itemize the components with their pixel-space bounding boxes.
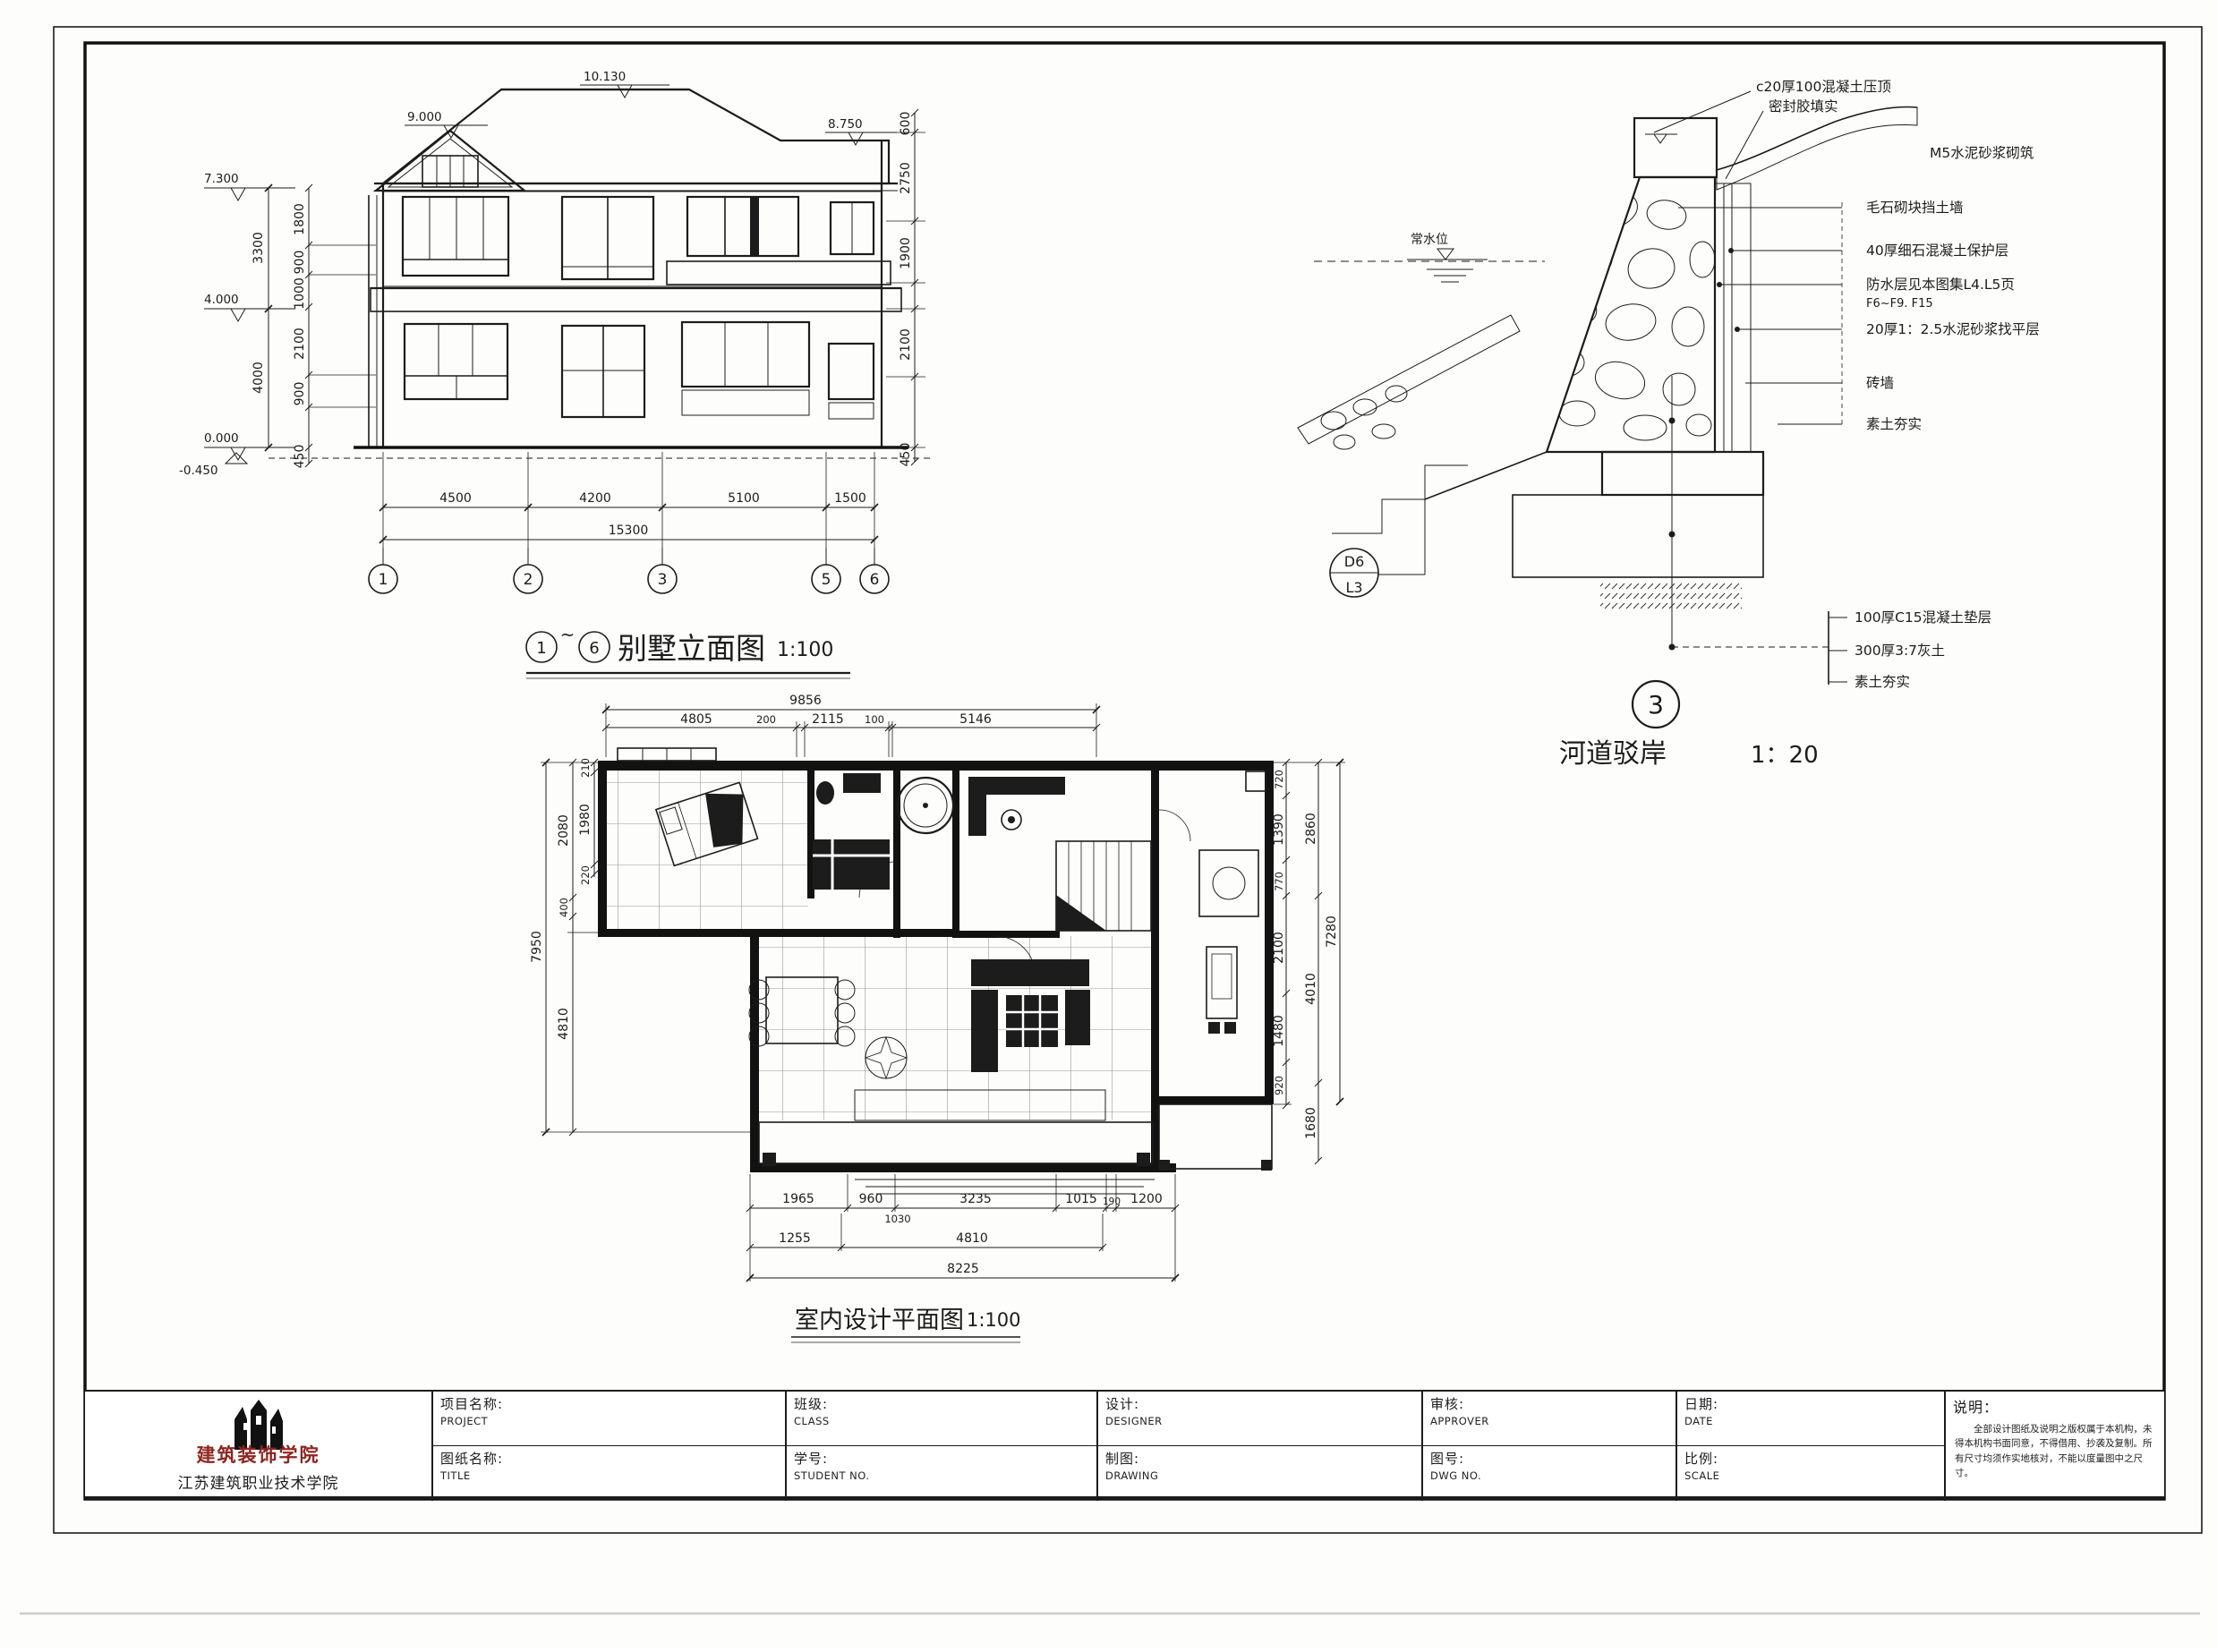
notes-cell: 说明： 全部设计图纸及说明之版权属于本机构，未得本机构书面同意，不得借用、抄袭及… — [1944, 1392, 2164, 1501]
dim-9856: 9856 — [789, 694, 822, 708]
logo-text-line2: 江苏建筑职业技术学院 — [178, 1470, 339, 1493]
level-below-ground: -0.450 — [179, 464, 218, 478]
field-drawing-en: DRAWING — [1105, 1469, 1414, 1482]
sheet-border — [20, 27, 2202, 1614]
ann-sealant: 密封胶填实 — [1769, 98, 1838, 115]
revetment-title: 3 河道驳岸 1：20 — [1559, 681, 1819, 770]
dim-b-1015: 1015 — [1065, 1192, 1097, 1206]
dim-r-2750: 2750 — [899, 162, 913, 194]
field-col-date-scale: 日期: DATE 比例: SCALE — [1676, 1392, 1944, 1501]
dim-l-400: 400 — [558, 898, 570, 917]
revetment-bubble-number: 3 — [1648, 690, 1664, 720]
dim-r-600: 600 — [899, 112, 913, 136]
dim-2115: 2115 — [812, 712, 844, 727]
floorplan-dims-bottom: 1965 960 1030 3235 1015 190 1200 1255 48… — [746, 1174, 1179, 1282]
dim-r-720: 720 — [1273, 770, 1285, 789]
dim-r-2100: 2100 — [899, 328, 913, 361]
floorplan-title: 室内设计平面图 1:100 — [791, 1307, 1021, 1342]
dim-r-770: 770 — [1273, 872, 1285, 891]
revetment-detail-drawing: 常水位 — [1298, 107, 1917, 651]
dim-b-960: 960 — [859, 1192, 883, 1206]
field-approver-en: APPROVER — [1430, 1415, 1668, 1427]
field-student-no-zh: 学号: — [794, 1449, 1089, 1468]
revetment-annotations-bottom: 100厚C15混凝土垫层 300厚3:7灰土 素土夯实 — [1829, 609, 1991, 690]
notes-text: 全部设计图纸及说明之版权属于本机构，未得本机构书面同意，不得借用、抄袭及复制。所… — [1955, 1422, 2155, 1480]
dim-900a: 900 — [293, 251, 307, 275]
ann-compacted-soil-b: 素土夯实 — [1855, 674, 1910, 690]
dim-4805: 4805 — [680, 712, 712, 727]
dim-b-4810: 4810 — [956, 1231, 988, 1246]
dim-5146: 5146 — [959, 712, 992, 727]
ann-brick-wall: 砖墙 — [1866, 375, 1894, 391]
dim-4200: 4200 — [579, 491, 611, 506]
field-date: 日期: DATE — [1677, 1392, 1944, 1446]
dim-r-1900: 1900 — [899, 237, 913, 269]
field-approver-zh: 审核: — [1430, 1394, 1668, 1413]
elevation-title-text: 别墅立面图 — [618, 631, 765, 666]
field-scale: 比例: SCALE — [1677, 1446, 1944, 1501]
dim-b-190: 190 — [1103, 1196, 1121, 1207]
floorplan-dims-right: 720 1390 770 2100 1480 920 2860 4010 168… — [1272, 759, 1345, 1164]
title-range-sep: ~ — [560, 624, 576, 645]
revetment-ref-bubble: D6 L3 — [1330, 498, 1425, 597]
grid-bubble-6: 6 — [870, 571, 880, 589]
level-ridge: 10.130 — [584, 70, 626, 84]
dim-r-450: 450 — [899, 443, 913, 467]
field-title: 图纸名称: TITLE — [433, 1446, 785, 1501]
grid-bubble-2: 2 — [524, 571, 533, 589]
grid-bubble-5: 5 — [822, 571, 831, 589]
field-designer-en: DESIGNER — [1105, 1415, 1414, 1427]
level-eave: 7.300 — [204, 172, 239, 186]
ann-protective-layer: 40厚细石混凝土保护层 — [1866, 243, 2008, 259]
dim-1800: 1800 — [293, 203, 307, 235]
drawing-sheet: 10.130 9.000 8.750 7.300 4.000 0.000 -0.… — [0, 0, 2217, 1648]
ann-waterproof-1: 防水层见本图集L4.L5页 — [1866, 277, 2015, 293]
field-dwg-no: 图号: DWG NO. — [1423, 1446, 1676, 1501]
ann-retaining-wall: 毛石砌块挡土墙 — [1866, 200, 1964, 216]
floorplan-title-text: 室内设计平面图 — [795, 1307, 964, 1334]
dim-b-1030: 1030 — [884, 1213, 910, 1225]
field-drawing: 制图: DRAWING — [1098, 1446, 1421, 1501]
floorplan-title-scale: 1:100 — [967, 1309, 1021, 1331]
dim-r-2100: 2100 — [1272, 932, 1286, 964]
field-approver: 审核: APPROVER — [1423, 1392, 1676, 1446]
elevation-dims-left: 3300 4000 1800 900 1000 2100 900 450 — [252, 184, 376, 468]
title-range-end: 6 — [589, 639, 599, 658]
dim-15300: 15300 — [609, 524, 649, 538]
dim-l-4810: 4810 — [557, 1008, 571, 1040]
dim-l-1980: 1980 — [578, 804, 593, 836]
field-scale-zh: 比例: — [1684, 1449, 1937, 1468]
dim-b-8225: 8225 — [947, 1262, 979, 1276]
dim-200: 200 — [756, 713, 776, 726]
elevation-levels: 10.130 9.000 8.750 7.300 4.000 0.000 -0.… — [179, 70, 897, 478]
elevation-dims-bottom: 4500 4200 5100 1500 15300 1 2 3 5 6 — [369, 452, 889, 593]
dim-r-1680: 1680 — [1304, 1107, 1318, 1139]
field-date-en: DATE — [1684, 1415, 1937, 1427]
dim-l-220: 220 — [579, 865, 592, 885]
field-class-en: CLASS — [794, 1415, 1089, 1427]
dim-l-210: 210 — [579, 758, 592, 778]
dim-r-920: 920 — [1273, 1076, 1285, 1095]
dim-l-7950: 7950 — [530, 931, 544, 963]
dim-2100: 2100 — [293, 328, 307, 360]
level-ground: 0.000 — [204, 431, 239, 446]
ref-top: D6 — [1344, 553, 1365, 570]
revetment-title-text: 河道驳岸 — [1559, 738, 1667, 770]
ann-cap: c20厚100混凝土压顶 — [1756, 79, 1891, 95]
revetment-annotations-right: 毛石砌块挡土墙 40厚细石混凝土保护层 防水层见本图集L4.L5页 F6~F9.… — [1678, 200, 2040, 432]
revetment-title-scale: 1：20 — [1751, 742, 1819, 769]
ann-cushion: 100厚C15混凝土垫层 — [1855, 609, 1991, 626]
field-drawing-zh: 制图: — [1105, 1449, 1414, 1468]
level-floor2: 4.000 — [204, 293, 239, 307]
elevation-title: 1 ~ 6 别墅立面图 1:100 — [526, 624, 850, 678]
rubble-stones — [1545, 186, 1715, 440]
dim-4000: 4000 — [252, 362, 266, 394]
dim-b-1965: 1965 — [782, 1192, 814, 1206]
dim-r-4010: 4010 — [1304, 973, 1318, 1005]
dim-1000: 1000 — [293, 277, 307, 310]
dim-1500: 1500 — [834, 491, 866, 506]
dim-5100: 5100 — [728, 491, 760, 506]
dim-r-7280: 7280 — [1325, 915, 1339, 948]
field-designer-zh: 设计: — [1105, 1394, 1414, 1413]
logo-cell: 建筑装饰学院 江苏建筑职业技术学院 — [85, 1392, 431, 1501]
dim-r-2860: 2860 — [1304, 813, 1318, 845]
logo-text-line1: 建筑装饰学院 — [197, 1441, 320, 1468]
grid-bubble-3: 3 — [658, 571, 668, 589]
elevation-title-scale: 1:100 — [777, 639, 833, 661]
field-scale-en: SCALE — [1684, 1469, 1937, 1482]
level-right-roof: 8.750 — [828, 117, 863, 132]
dim-4500: 4500 — [439, 491, 472, 506]
title-block: 建筑装饰学院 江苏建筑职业技术学院 项目名称: PROJECT 图纸名称: TI… — [85, 1390, 2164, 1499]
field-date-zh: 日期: — [1684, 1394, 1937, 1413]
field-col-approver-dwgno: 审核: APPROVER 图号: DWG NO. — [1421, 1392, 1676, 1501]
floorplan-drawing — [598, 748, 1274, 1194]
field-title-zh: 图纸名称: — [440, 1449, 778, 1468]
field-project: 项目名称: PROJECT — [433, 1392, 785, 1446]
dim-b-1255: 1255 — [779, 1231, 811, 1246]
field-col-designer-drawing: 设计: DESIGNER 制图: DRAWING — [1096, 1392, 1421, 1501]
field-dwg-no-zh: 图号: — [1430, 1449, 1668, 1468]
field-dwg-no-en: DWG NO. — [1430, 1469, 1668, 1482]
ref-bottom: L3 — [1345, 579, 1362, 596]
dim-l-2080: 2080 — [557, 814, 571, 847]
water-level-label: 常水位 — [1411, 233, 1448, 247]
level-left-gable: 9.000 — [407, 110, 442, 124]
field-class-zh: 班级: — [794, 1394, 1089, 1413]
field-col-project-title: 项目名称: PROJECT 图纸名称: TITLE — [431, 1392, 785, 1501]
ann-leveling-layer: 20厚1：2.5水泥砂浆找平层 — [1866, 321, 2040, 337]
field-project-zh: 项目名称: — [440, 1394, 778, 1413]
dim-3300: 3300 — [252, 232, 266, 264]
notes-label: 说明： — [1953, 1395, 2157, 1417]
ann-mortar: M5水泥砂浆砌筑 — [1930, 145, 2034, 161]
field-student-no-en: STUDENT NO. — [794, 1469, 1089, 1482]
field-col-class-student: 班级: CLASS 学号: STUDENT NO. — [785, 1392, 1096, 1501]
field-class: 班级: CLASS — [787, 1392, 1096, 1446]
dim-r-1390: 1390 — [1272, 813, 1286, 846]
dim-b-3235: 3235 — [959, 1192, 992, 1206]
dim-r-1480: 1480 — [1272, 1015, 1286, 1047]
field-student-no: 学号: STUDENT NO. — [787, 1446, 1096, 1501]
villa-elevation-drawing — [269, 89, 931, 458]
ann-waterproof-2: F6~F9. F15 — [1866, 297, 1933, 311]
field-project-en: PROJECT — [440, 1415, 778, 1427]
grid-bubble-1: 1 — [379, 571, 388, 589]
ann-lime-soil: 300厚3:7灰土 — [1855, 643, 1945, 659]
dim-100: 100 — [865, 713, 884, 726]
dim-900b: 900 — [293, 382, 307, 406]
title-range-start: 1 — [536, 639, 546, 658]
revetment-annotations-top: c20厚100混凝土压顶 密封胶填实 M5水泥砂浆砌筑 — [1654, 79, 2034, 179]
field-designer: 设计: DESIGNER — [1098, 1392, 1421, 1446]
dim-b-1200: 1200 — [1130, 1192, 1163, 1206]
dim-450: 450 — [293, 445, 307, 469]
ann-compacted-soil-r: 素土夯实 — [1866, 416, 1922, 432]
field-title-en: TITLE — [440, 1469, 778, 1482]
